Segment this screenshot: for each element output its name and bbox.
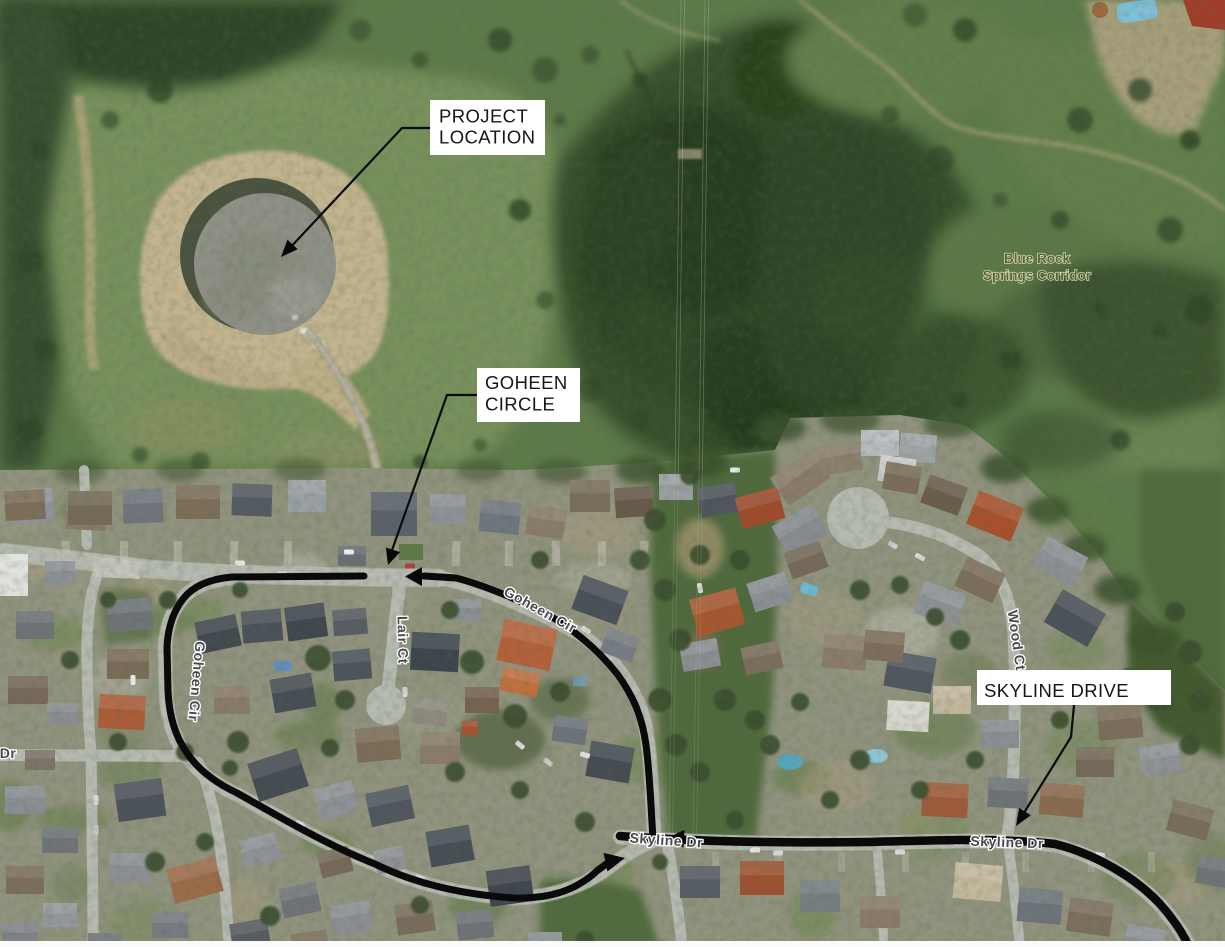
svg-text:CIRCLE: CIRCLE <box>485 394 555 415</box>
svg-text:Springs Corridor: Springs Corridor <box>983 268 1092 283</box>
svg-text:SKYLINE DRIVE: SKYLINE DRIVE <box>984 680 1129 701</box>
svg-text:GOHEEN: GOHEEN <box>485 372 568 393</box>
svg-text:Dr: Dr <box>0 745 16 761</box>
svg-text:PROJECT: PROJECT <box>439 106 528 127</box>
svg-text:Skyline Dr: Skyline Dr <box>970 833 1044 852</box>
svg-text:LOCATION: LOCATION <box>439 127 535 148</box>
svg-text:Blue Rock: Blue Rock <box>1004 251 1071 266</box>
svg-text:Lair Ct: Lair Ct <box>395 616 412 664</box>
